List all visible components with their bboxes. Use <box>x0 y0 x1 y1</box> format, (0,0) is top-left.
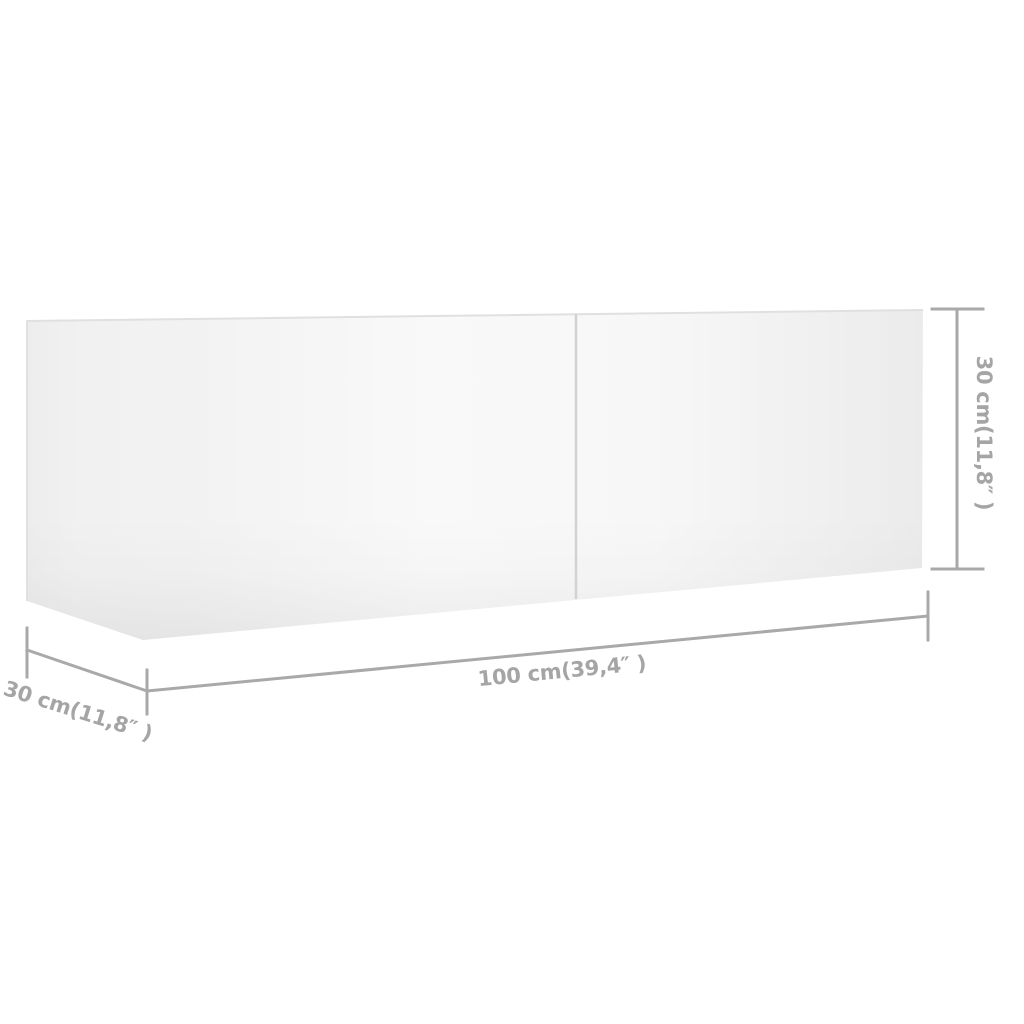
height-dimension-label: 30 cm(11,8″ ) <box>972 356 996 511</box>
product-dimension-image: 30 cm(11,8″ ) 100 cm(39,4″ ) 30 cm(11,8″… <box>0 0 1024 1024</box>
height-dimension: 30 cm(11,8″ ) <box>932 309 996 569</box>
depth-dimension-line <box>27 650 147 691</box>
depth-dimension: 30 cm(11,8″ ) <box>1 628 156 746</box>
cabinet <box>27 310 923 640</box>
cabinet-bottom-shading <box>27 310 923 640</box>
dimension-diagram-canvas: 30 cm(11,8″ ) 100 cm(39,4″ ) 30 cm(11,8″… <box>0 0 1024 1024</box>
